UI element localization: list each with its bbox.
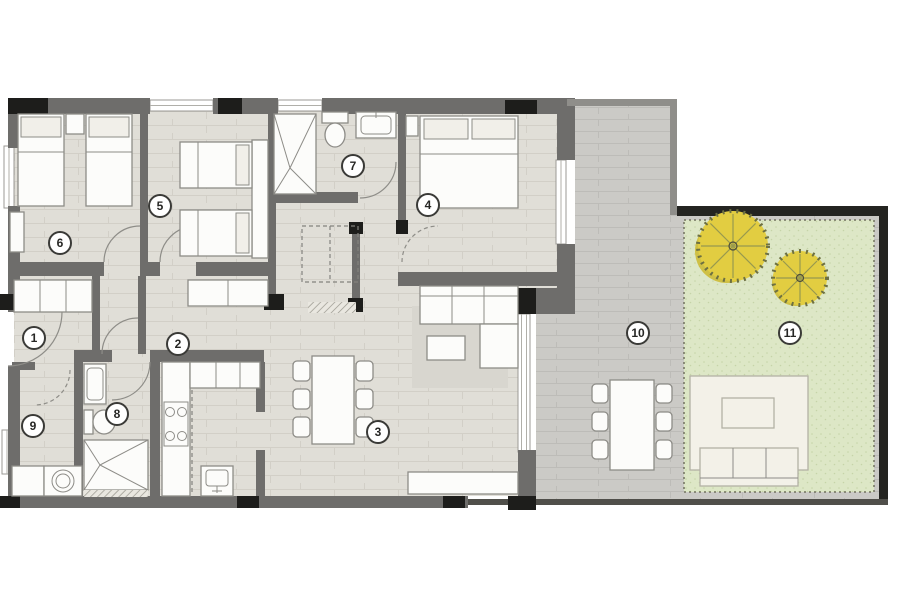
- outdoor-dining-table: [610, 380, 654, 470]
- nightstand: [66, 114, 84, 134]
- interior-wall: [140, 262, 160, 276]
- floor-plan-stage: 1234567891011: [0, 0, 900, 600]
- garden-wall: [879, 206, 888, 505]
- sofa-chaise: [480, 324, 518, 368]
- sofa: [420, 286, 518, 324]
- chair: [293, 417, 310, 437]
- terrace-wall: [567, 99, 677, 106]
- interior-wall: [398, 114, 406, 226]
- counter: [12, 466, 44, 496]
- interior-wall: [196, 262, 276, 276]
- interior-wall: [256, 450, 265, 498]
- dining-table: [312, 356, 354, 444]
- room-11-garden-badge: 11: [778, 321, 802, 345]
- room-3-living-dining-badge: 3: [366, 420, 390, 444]
- pillow: [236, 145, 249, 185]
- washbasin: [84, 364, 106, 404]
- nightstand: [406, 116, 418, 136]
- window: [556, 160, 566, 244]
- washbasin: [356, 112, 396, 138]
- room-5-bedroom-badge: 5: [148, 194, 172, 218]
- terrace-furniture: [592, 380, 672, 470]
- pillow: [424, 119, 468, 139]
- chair: [293, 361, 310, 381]
- utility-9-fixtures: [12, 466, 82, 496]
- terrace-wall: [670, 99, 677, 215]
- structural-column: [505, 100, 537, 114]
- interior-wall: [150, 350, 160, 498]
- room-8-bathroom-badge: 8: [105, 402, 129, 426]
- pillow: [89, 117, 129, 137]
- structural-column: [0, 496, 20, 508]
- interior-wall: [398, 272, 575, 286]
- window: [150, 100, 213, 111]
- room-9-utility-badge: 9: [21, 414, 45, 438]
- room-7-bathroom-badge: 7: [341, 154, 365, 178]
- chair: [356, 389, 373, 409]
- shower-tray: [84, 440, 148, 497]
- structural-column: [218, 98, 242, 114]
- threshold: [308, 302, 356, 313]
- shower: [274, 114, 316, 194]
- kitchen-sink: [201, 466, 233, 496]
- chair: [592, 384, 608, 403]
- kitchen-counter: [162, 362, 190, 496]
- structural-column: [396, 220, 408, 234]
- kitchen-counter: [190, 362, 260, 388]
- window: [278, 100, 322, 111]
- pillow: [472, 119, 515, 139]
- interior-wall: [92, 276, 100, 354]
- chair: [293, 389, 310, 409]
- interior-wall: [138, 276, 146, 354]
- interior-wall: [8, 262, 104, 276]
- room-10-terrace-badge: 10: [626, 321, 650, 345]
- structural-column: [237, 496, 259, 508]
- sliding-glass-door: [518, 314, 530, 452]
- room-6-bedroom-badge: 6: [48, 231, 72, 255]
- room-2-kitchen-badge: 2: [166, 332, 190, 356]
- outdoor-coffee-table: [722, 398, 774, 428]
- washing-machine: [44, 466, 82, 496]
- chair: [656, 440, 672, 459]
- chair: [656, 412, 672, 431]
- pillow: [21, 117, 61, 137]
- chair: [592, 440, 608, 459]
- shelf: [10, 212, 24, 252]
- floor-plan-drawing: [0, 0, 900, 600]
- shower-screen: [84, 490, 148, 497]
- headboard: [252, 140, 268, 258]
- entrance-closet: [14, 280, 92, 312]
- structural-column: [349, 222, 363, 234]
- chair: [592, 412, 608, 431]
- interior-wall: [150, 350, 264, 362]
- structural-column: [8, 98, 48, 114]
- exterior-wall: [557, 98, 575, 160]
- sideboard: [408, 472, 518, 494]
- structural-column: [443, 496, 465, 508]
- coffee-table: [427, 336, 465, 360]
- pillow: [236, 213, 249, 253]
- interior-wall: [140, 114, 148, 262]
- outdoor-sofa: [700, 448, 798, 486]
- window: [4, 146, 14, 208]
- garden-wall: [677, 206, 888, 216]
- room-1-entrance-hall-badge: 1: [22, 326, 46, 350]
- chair: [656, 384, 672, 403]
- chair: [356, 361, 373, 381]
- structural-column: [508, 496, 536, 510]
- room-4-bedroom-badge: 4: [416, 193, 440, 217]
- exterior-wall: [518, 450, 536, 498]
